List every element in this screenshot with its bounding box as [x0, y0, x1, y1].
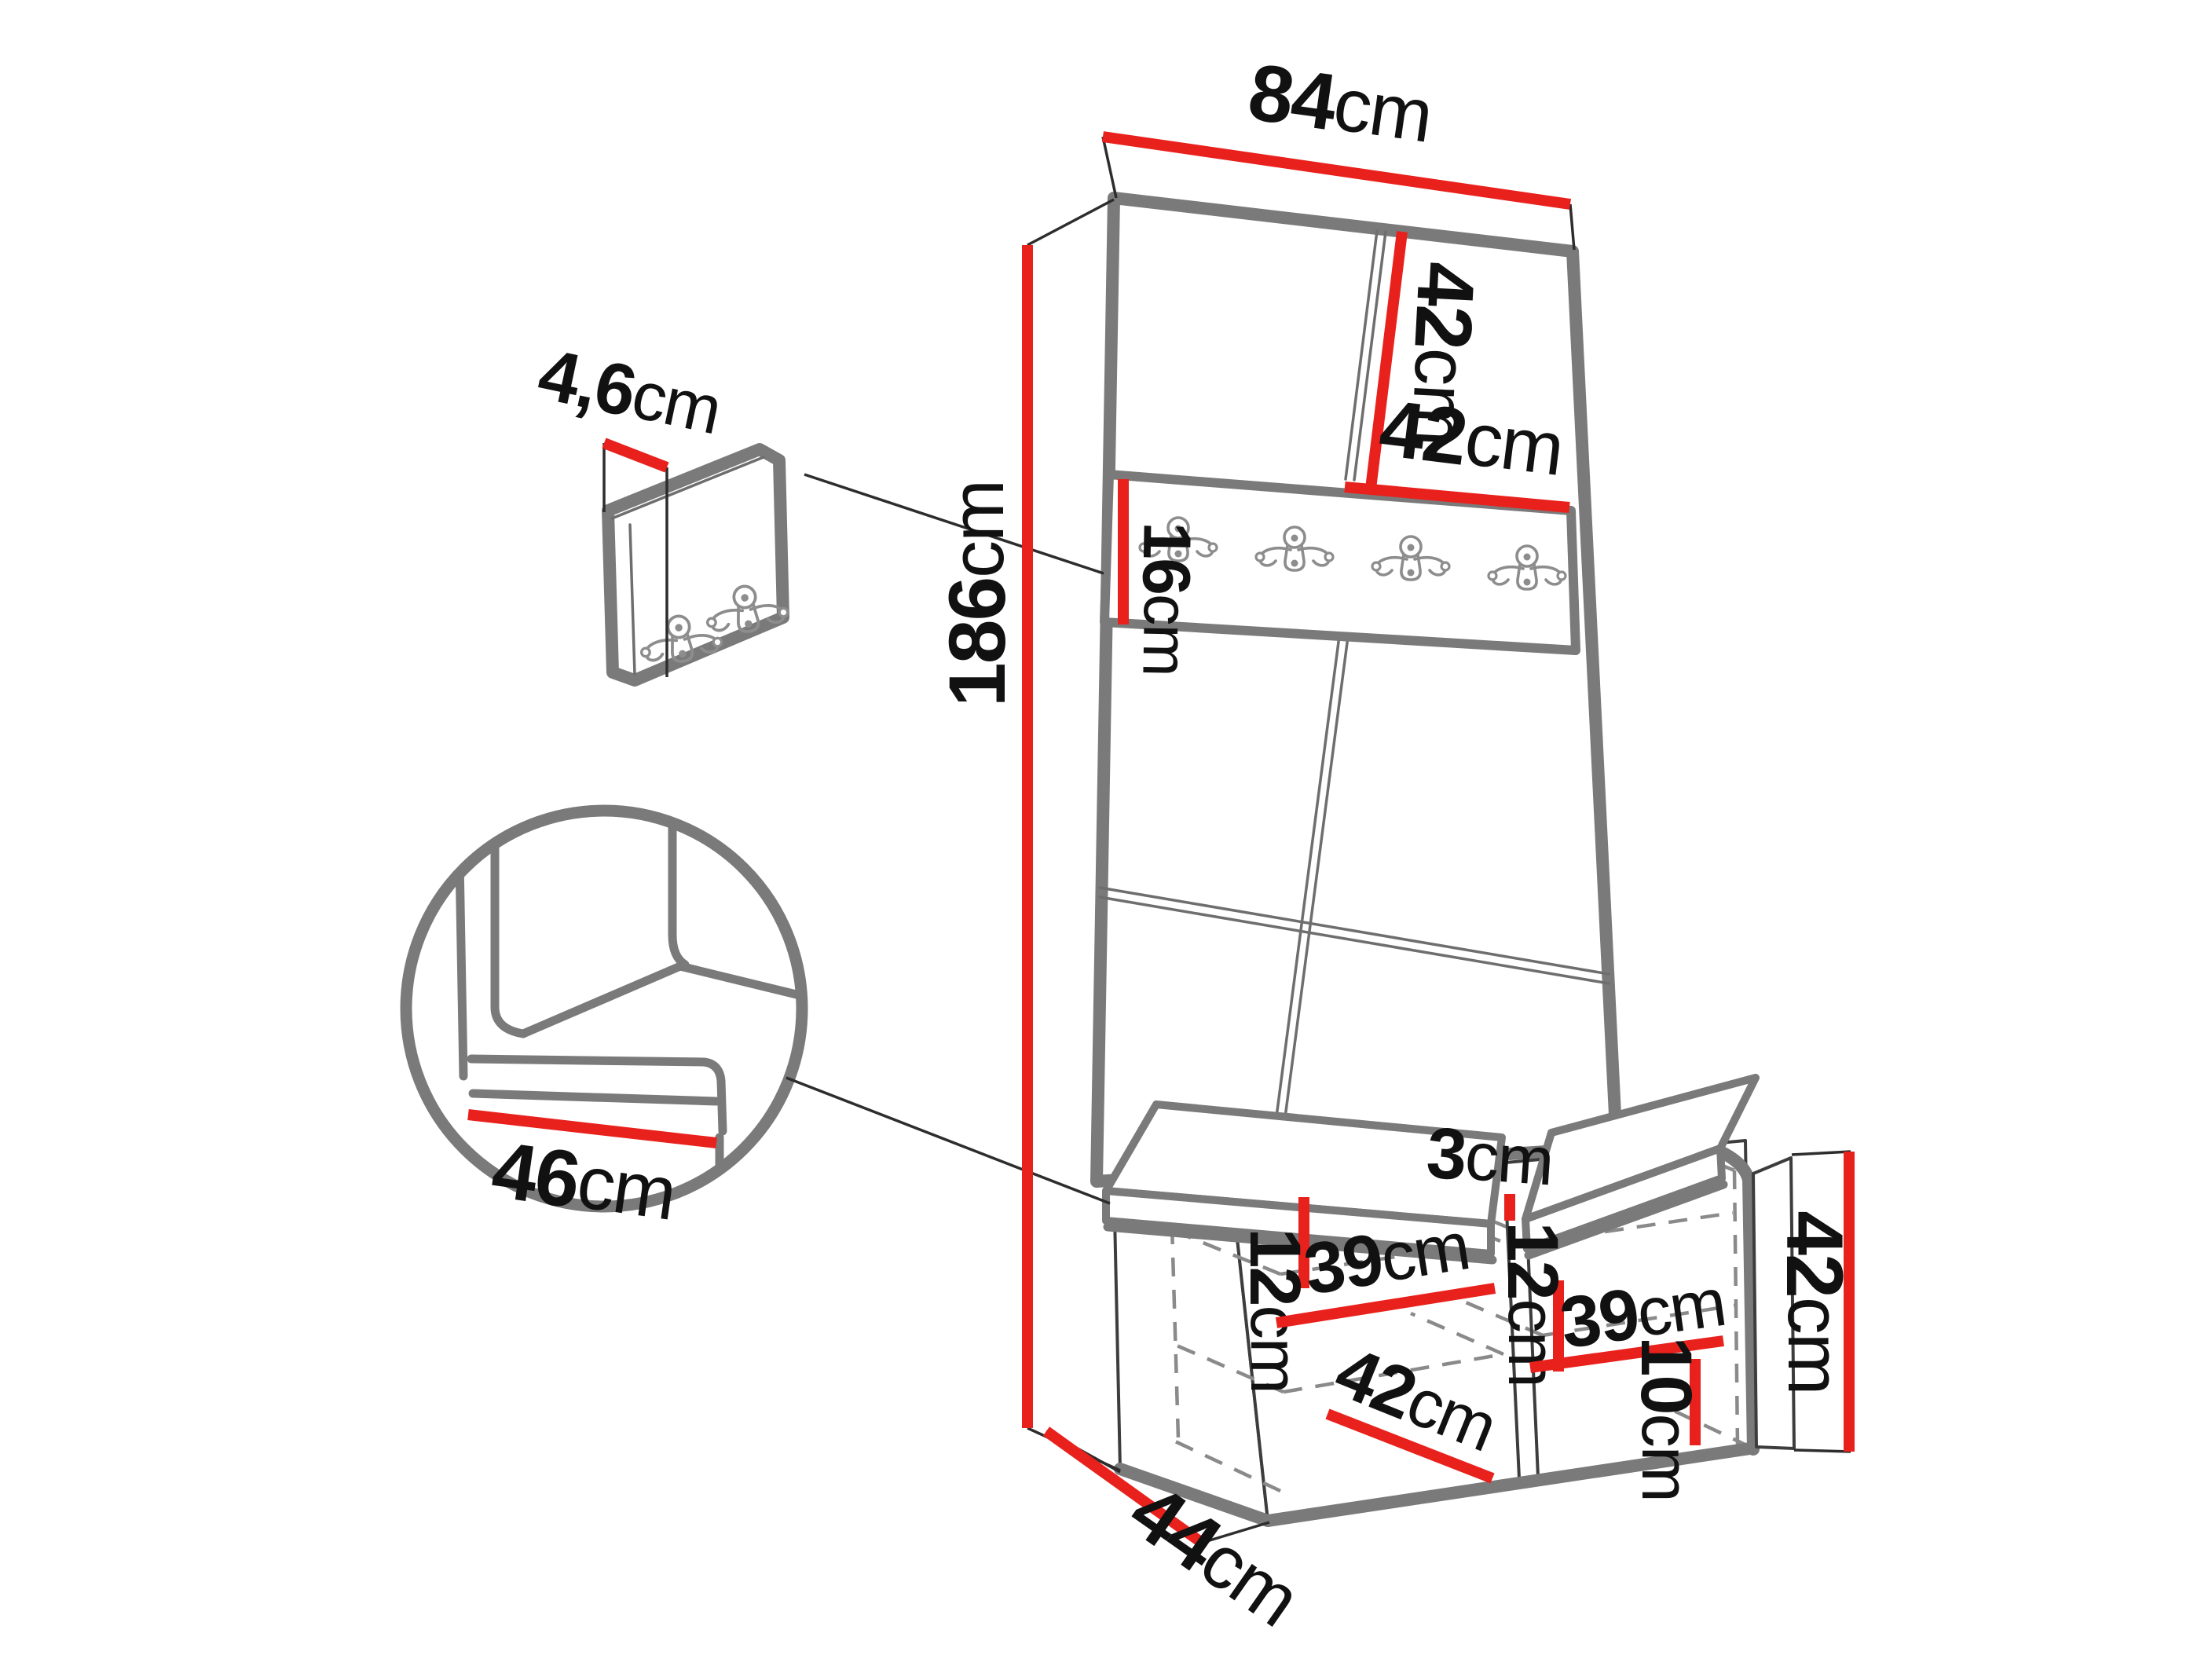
dimension-total-height: 186cm — [932, 200, 1120, 1470]
dimension-plinth-height: 10cm — [1626, 1336, 1706, 1501]
dimension-label-16cm: 16cm — [1127, 522, 1205, 676]
wardrobe-back-panel — [1097, 198, 1617, 1181]
diagram-canvas: 84cm 42cm 42cm 16cm 186cm 4 — [0, 0, 2212, 1659]
furniture-dimension-diagram: 84cm 42cm 42cm 16cm 186cm 4 — [0, 0, 2212, 1659]
dimension-label-4-6cm: 4,6cm — [532, 334, 727, 450]
dimension-line — [604, 443, 667, 467]
dimension-label-3cm: 3cm — [1424, 1113, 1555, 1202]
dimension-label-42cm-right: 42cm — [1770, 1210, 1859, 1393]
dimension-label-10cm: 10cm — [1626, 1336, 1706, 1501]
dimension-line — [1103, 137, 1570, 204]
leader-line — [786, 1078, 1110, 1203]
dimension-label-84cm: 84cm — [1243, 46, 1437, 160]
dimension-label-186cm: 186cm — [932, 481, 1022, 707]
